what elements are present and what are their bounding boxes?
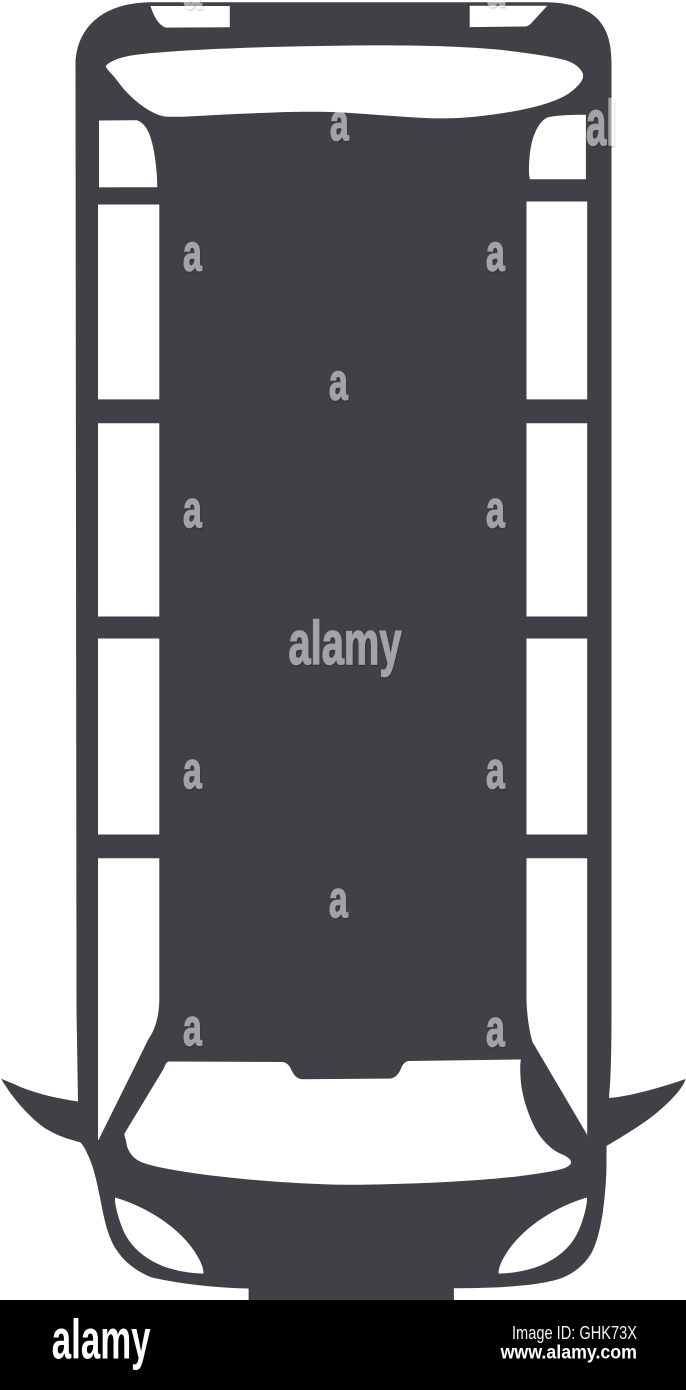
svg-text:alamy: alamy: [52, 1308, 151, 1370]
svg-text:a: a: [329, 871, 348, 929]
svg-text:a: a: [330, 94, 349, 152]
svg-text:Image ID: GHK73X: Image ID: GHK73X: [512, 1322, 637, 1343]
svg-text:a: a: [329, 353, 348, 411]
svg-text:a: a: [486, 742, 505, 800]
svg-text:a: a: [183, 742, 202, 800]
svg-text:www.alamy.com: www.alamy.com: [500, 1343, 637, 1364]
svg-text:a: a: [486, 1000, 505, 1058]
svg-text:al: al: [586, 88, 616, 159]
svg-text:a: a: [486, 0, 505, 18]
svg-text:a: a: [183, 224, 202, 282]
svg-text:a: a: [183, 0, 202, 20]
svg-text:a: a: [486, 481, 505, 539]
svg-text:a: a: [183, 481, 202, 539]
svg-text:a: a: [183, 999, 202, 1057]
svg-text:alamy: alamy: [289, 609, 402, 677]
svg-text:a: a: [486, 224, 505, 282]
